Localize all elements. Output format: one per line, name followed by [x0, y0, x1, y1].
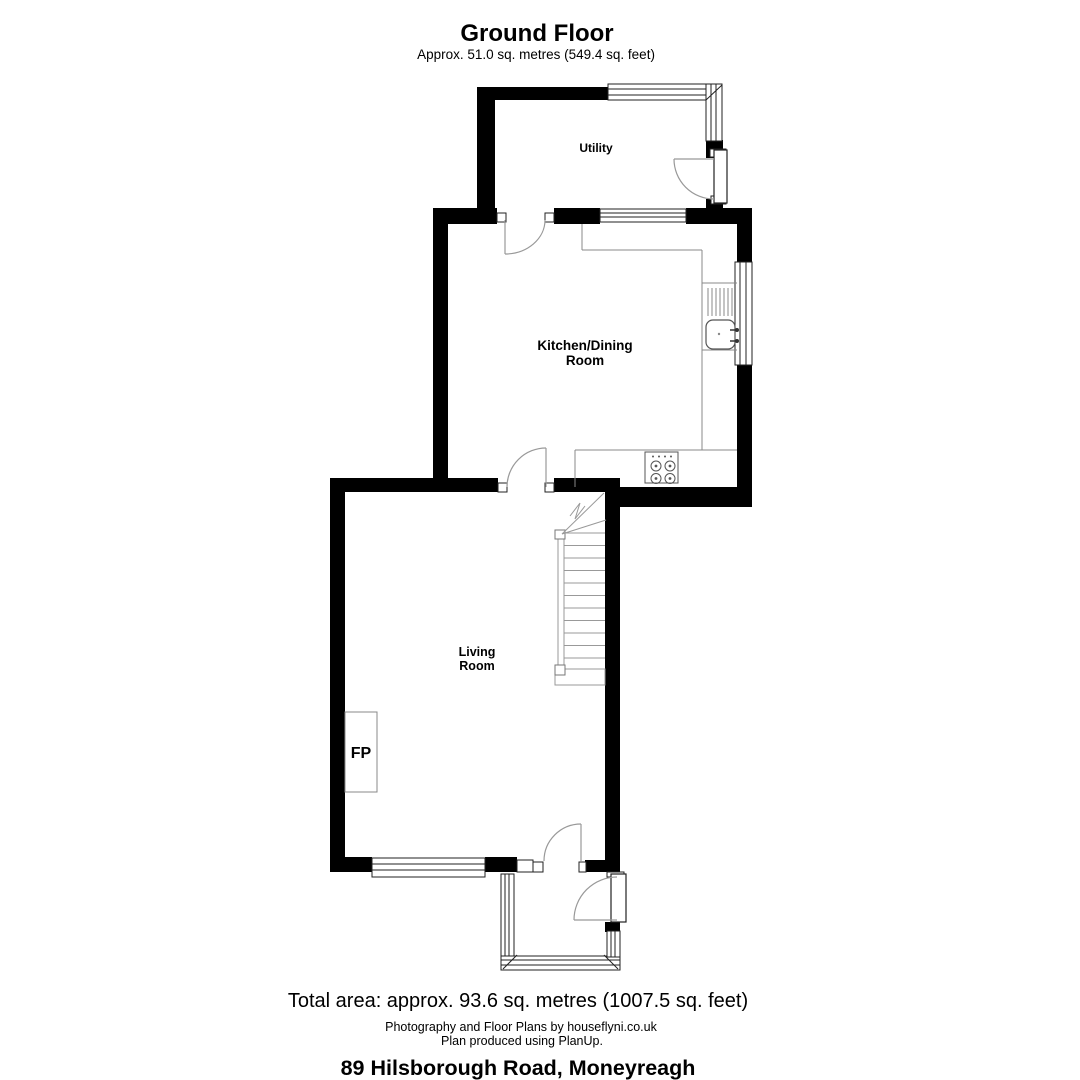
stair-treads: [560, 533, 605, 658]
jamb: [498, 483, 507, 492]
floor-title: Ground Floor: [460, 20, 613, 47]
living-to-porch-door: [544, 824, 581, 861]
credit-software-text: Plan produced using PlanUp.: [441, 1034, 603, 1048]
porch-left-window: [501, 874, 514, 958]
porch-right-window: [607, 931, 620, 957]
living-bottom-window: [372, 858, 485, 877]
living-top-wall-b: [554, 478, 620, 492]
kitchen-right-window: [735, 262, 752, 365]
kitchen-dining-label-line1: Kitchen/Dining: [537, 338, 632, 353]
utility-corner-window-top: [608, 84, 720, 100]
kitchen-top-wall-b: [554, 208, 600, 224]
living-bottom-wall-a: [330, 857, 372, 872]
floor-plan-page: Ground Floor Approx. 51.0 sq. metres (54…: [0, 0, 1080, 1080]
stair-break-line: [562, 493, 606, 534]
kitchen-bottom-wall: [605, 487, 752, 507]
utility-external-door: [674, 150, 727, 203]
kitchen-dining-label-line2: Room: [566, 353, 604, 368]
sink-icon: [706, 288, 739, 349]
stairs: [555, 493, 606, 685]
living-bottom-wall-c: [585, 860, 605, 872]
front-entrance-door: [574, 874, 626, 922]
living-bottom-wall-b: [485, 857, 517, 872]
fireplace: FP: [345, 712, 377, 792]
fireplace-label: FP: [351, 745, 372, 762]
living-right-wall: [605, 492, 620, 872]
living-left-wall: [330, 478, 345, 872]
floor-plan-canvas: Ground Floor Approx. 51.0 sq. metres (54…: [0, 0, 1080, 1080]
kitchen-right-wall-lower: [737, 365, 752, 492]
stair-handrail-cap-top: [555, 530, 565, 539]
living-top-wall-a: [330, 478, 498, 492]
living-room-label-line1: Living: [459, 645, 496, 659]
walls: [330, 87, 752, 932]
stair-handrail: [558, 536, 564, 668]
credit-photography-text: Photography and Floor Plans by houseflyn…: [385, 1020, 657, 1034]
kitchen-left-wall: [433, 208, 448, 492]
living-room-label-line2: Room: [459, 659, 494, 673]
utility-left-wall: [477, 87, 495, 218]
jamb: [579, 862, 586, 872]
porch-frame-panel: [517, 860, 533, 872]
utility-to-kitchen-door: [505, 220, 545, 254]
jamb: [533, 862, 543, 872]
kitchen-top-wall-c: [686, 208, 752, 224]
utility-corner-window-right: [706, 84, 722, 141]
porch-bottom-window: [501, 955, 620, 970]
jamb: [545, 213, 554, 222]
utility-top-wall: [477, 87, 608, 100]
kitchen-internal-window: [600, 209, 686, 222]
property-address-text: 89 Hilsborough Road, Moneyreagh: [341, 1056, 696, 1080]
stair-handrail-cap-bottom: [555, 665, 565, 675]
hob-icon: [645, 452, 678, 484]
floor-area-subtitle: Approx. 51.0 sq. metres (549.4 sq. feet): [417, 47, 655, 62]
total-area-text: Total area: approx. 93.6 sq. metres (100…: [288, 990, 748, 1012]
kitchen-to-living-door: [507, 448, 546, 487]
utility-room-label: Utility: [579, 141, 613, 155]
kitchen-right-wall-upper: [737, 224, 752, 262]
